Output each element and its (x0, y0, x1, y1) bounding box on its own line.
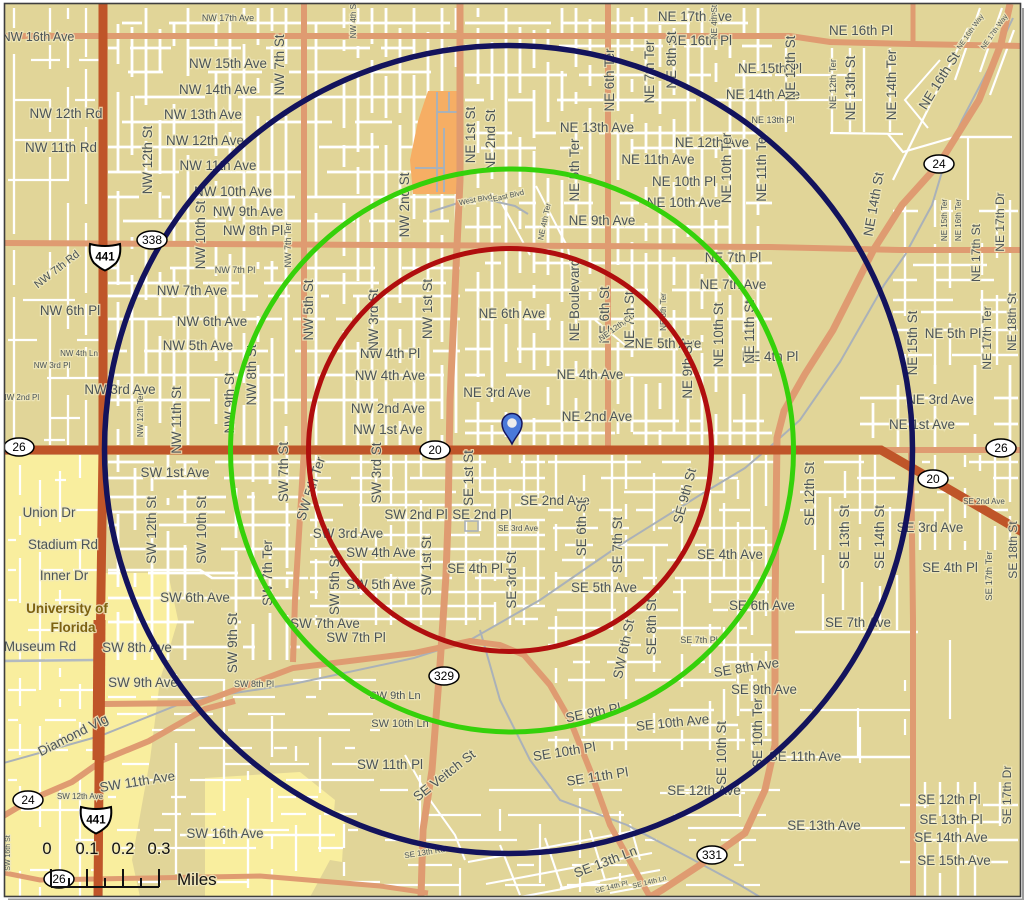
svg-text:NW 9th Ave: NW 9th Ave (213, 204, 283, 219)
svg-text:SE 15th Ave: SE 15th Ave (917, 853, 990, 868)
svg-text:SW 1st Ave: SW 1st Ave (141, 465, 210, 480)
svg-text:NW 1st St: NW 1st St (420, 279, 435, 340)
svg-text:0.2: 0.2 (112, 840, 135, 858)
svg-text:NE 9th Ave: NE 9th Ave (569, 213, 636, 228)
svg-text:20: 20 (428, 443, 442, 457)
svg-text:NW 12th Rd: NW 12th Rd (30, 106, 103, 121)
svg-text:SE 14th Ave: SE 14th Ave (914, 830, 987, 845)
svg-text:SW 5th St: SW 5th St (327, 555, 342, 616)
svg-text:SE 12th Pl: SE 12th Pl (917, 792, 980, 807)
svg-text:Inner Dr: Inner Dr (40, 568, 89, 583)
svg-text:441: 441 (95, 252, 115, 264)
svg-text:SE 6th St: SE 6th St (574, 499, 589, 556)
svg-text:NE 1st St: NE 1st St (463, 106, 478, 163)
svg-text:26: 26 (994, 441, 1008, 455)
svg-text:NE 12th Ter: NE 12th Ter (828, 59, 839, 109)
svg-text:NE 13th St: NE 13th St (843, 55, 858, 120)
svg-text:SE 2nd Ave: SE 2nd Ave (963, 497, 1005, 506)
svg-text:20: 20 (926, 472, 940, 486)
svg-text:0.1: 0.1 (76, 840, 99, 858)
svg-text:SE 1st St: SE 1st St (461, 450, 476, 506)
svg-text:NW 7th Ave: NW 7th Ave (157, 283, 227, 298)
svg-text:NW 2nd Pl: NW 2nd Pl (1, 393, 39, 402)
svg-text:NW 7th Ter: NW 7th Ter (283, 223, 293, 268)
svg-text:Florida: Florida (50, 620, 95, 635)
svg-text:SW 12th Ave: SW 12th Ave (57, 792, 104, 801)
svg-text:SW 10th Ln: SW 10th Ln (371, 718, 428, 730)
svg-text:0.3: 0.3 (148, 840, 171, 858)
svg-text:SE 7th St: SE 7th St (610, 516, 625, 573)
svg-text:NE 12th Ave: NE 12th Ave (675, 135, 749, 150)
svg-text:SE 12th St: SE 12th St (802, 462, 817, 526)
svg-text:SE 13th St: SE 13th St (837, 505, 852, 569)
svg-text:NW 7th Pl: NW 7th Pl (215, 265, 256, 275)
svg-text:NW 2nd Ave: NW 2nd Ave (351, 401, 425, 416)
svg-text:331: 331 (702, 848, 722, 862)
svg-text:SW 6th Ave: SW 6th Ave (160, 590, 230, 605)
svg-text:NW 6th Ave: NW 6th Ave (177, 314, 247, 329)
svg-text:NW 3rd Pl: NW 3rd Pl (34, 361, 71, 370)
svg-text:NE 6th Ave: NE 6th Ave (479, 306, 546, 321)
svg-text:SE 3rd St: SE 3rd St (504, 551, 519, 609)
svg-text:University of: University of (26, 601, 108, 616)
svg-text:SE 10th Ter: SE 10th Ter (750, 698, 765, 768)
svg-text:NE 11th Ave: NE 11th Ave (621, 152, 694, 167)
svg-text:338: 338 (142, 233, 162, 247)
svg-text:NE 13th Pl: NE 13th Pl (751, 115, 794, 125)
svg-text:NE 12th St: NE 12th St (783, 35, 798, 100)
svg-text:SW 1st St: SW 1st St (419, 536, 434, 596)
svg-text:NW 13th Ave: NW 13th Ave (164, 107, 242, 122)
svg-text:SE 9th Ave: SE 9th Ave (731, 682, 797, 697)
svg-text:SW 7th St: SW 7th St (276, 442, 291, 503)
svg-text:SE 14th St: SE 14th St (872, 505, 887, 569)
svg-text:SE 7th Ave: SE 7th Ave (825, 615, 891, 630)
svg-text:26: 26 (12, 440, 26, 454)
svg-text:NW 7th St: NW 7th St (272, 34, 287, 95)
svg-text:SE 7th Pl: SE 7th Pl (680, 635, 718, 645)
svg-text:NE 17th Ter: NE 17th Ter (980, 306, 994, 369)
svg-text:NW 10th Ave: NW 10th Ave (194, 184, 272, 199)
svg-text:NE 14th Ter: NE 14th Ter (884, 49, 899, 120)
svg-text:NW 1st Ave: NW 1st Ave (353, 422, 423, 437)
svg-text:NW 12th Ter: NW 12th Ter (136, 393, 145, 438)
svg-text:Museum Rd: Museum Rd (4, 639, 76, 654)
svg-text:SW 10th St: SW 10th St (194, 496, 209, 564)
svg-text:SE 4th Pl: SE 4th Pl (922, 560, 978, 575)
svg-text:SE 17th Ter: SE 17th Ter (984, 551, 995, 600)
svg-text:NW 11th Rd: NW 11th Rd (25, 140, 97, 155)
svg-text:NE 4th Ave: NE 4th Ave (557, 367, 624, 382)
svg-text:SW 7th Pl: SW 7th Pl (326, 630, 386, 645)
svg-text:NE 17th Dr: NE 17th Dr (993, 192, 1007, 251)
svg-text:SW 4th Ave: SW 4th Ave (346, 545, 416, 560)
svg-text:0: 0 (42, 840, 51, 858)
svg-text:NE 18th St: NE 18th St (1005, 292, 1019, 351)
svg-text:NW 15th Ave: NW 15th Ave (189, 56, 267, 71)
svg-text:26: 26 (52, 872, 66, 886)
svg-text:SE 5th Ave: SE 5th Ave (571, 580, 637, 595)
svg-text:SW 3rd St: SW 3rd St (369, 442, 384, 503)
svg-text:Stadium Rd: Stadium Rd (28, 537, 98, 552)
svg-text:NW 8th Pl: NW 8th Pl (223, 223, 283, 238)
svg-text:SW 9th St: SW 9th St (225, 613, 240, 674)
svg-text:SW 16th St: SW 16th St (5, 835, 12, 870)
svg-text:NE 17th Ave: NE 17th Ave (658, 9, 732, 24)
svg-text:SE 4th Pl: SE 4th Pl (447, 561, 503, 576)
svg-text:NW 4th St: NW 4th St (349, 1, 358, 38)
svg-text:NW 10th St: NW 10th St (193, 200, 208, 269)
svg-text:SW 12th St: SW 12th St (144, 496, 159, 564)
svg-text:NW 14th Ave: NW 14th Ave (179, 82, 257, 97)
svg-text:NW 6th Pl: NW 6th Pl (40, 303, 100, 318)
svg-text:SE 17th Dr: SE 17th Dr (1000, 766, 1014, 825)
svg-text:441: 441 (86, 815, 106, 827)
svg-text:SE 18th St: SE 18th St (1006, 521, 1020, 579)
svg-text:329: 329 (434, 669, 454, 683)
svg-text:Miles: Miles (177, 870, 217, 889)
svg-text:NE 5th Pl: NE 5th Pl (925, 326, 982, 341)
svg-text:SE 13th Pl: SE 13th Pl (919, 812, 982, 827)
svg-text:Union Dr: Union Dr (23, 505, 76, 520)
svg-text:SW 2nd Pl: SW 2nd Pl (384, 507, 447, 522)
svg-text:NW 11th St: NW 11th St (169, 386, 184, 454)
svg-text:NE Boulevard: NE Boulevard (567, 259, 582, 342)
svg-text:SE 10th St: SE 10th St (714, 721, 729, 785)
svg-text:NE 10th St: NE 10th St (711, 302, 726, 367)
svg-text:NE 15th Ter: NE 15th Ter (940, 199, 949, 241)
svg-text:NE 3rd Ave: NE 3rd Ave (906, 392, 974, 407)
svg-text:NE 2nd Ave: NE 2nd Ave (562, 409, 632, 424)
svg-text:24: 24 (21, 793, 35, 807)
svg-text:NE 17th St: NE 17th St (969, 223, 983, 282)
svg-text:SE 2nd Pl: SE 2nd Pl (452, 507, 512, 522)
svg-text:NW 5th St: NW 5th St (301, 279, 316, 340)
svg-text:SE 13th Ave: SE 13th Ave (787, 818, 860, 833)
svg-text:NW 2nd St: NW 2nd St (397, 172, 412, 237)
svg-text:NW 12th St: NW 12th St (140, 125, 155, 194)
svg-text:24: 24 (932, 157, 946, 171)
svg-text:NE 10th Ter: NE 10th Ter (719, 132, 734, 203)
svg-text:NE 16th Pl: NE 16th Pl (829, 23, 893, 38)
svg-text:NE 5th Ter: NE 5th Ter (567, 138, 582, 202)
svg-text:NE 13th Ave: NE 13th Ave (560, 120, 634, 135)
svg-text:NE 3rd Ave: NE 3rd Ave (463, 385, 531, 400)
svg-text:SE 8th St: SE 8th St (644, 598, 659, 655)
svg-text:NE 16th Ter: NE 16th Ter (954, 199, 963, 241)
svg-text:SW 16th Ave: SW 16th Ave (186, 826, 263, 841)
svg-text:NW 17th Ave: NW 17th Ave (202, 13, 254, 23)
svg-text:NE 2nd St: NE 2nd St (483, 109, 498, 170)
svg-text:NE 4th St: NE 4th St (710, 4, 719, 39)
svg-text:NW 16th Ave: NW 16th Ave (2, 30, 75, 44)
svg-text:NW 4th Ave: NW 4th Ave (355, 368, 425, 383)
svg-text:SE 3rd Ave: SE 3rd Ave (498, 524, 538, 533)
svg-text:SW 11th Pl: SW 11th Pl (357, 757, 423, 772)
svg-text:SW 8th Pl: SW 8th Pl (234, 679, 274, 689)
svg-text:NW 12th Ave: NW 12th Ave (166, 133, 244, 148)
svg-text:NW 5th Ave: NW 5th Ave (163, 338, 233, 353)
svg-text:SE 6th Ave: SE 6th Ave (729, 598, 795, 613)
svg-text:SE 4th Ave: SE 4th Ave (697, 547, 763, 562)
svg-text:NE 15th St: NE 15th St (905, 310, 920, 375)
svg-text:NW 4th Ln: NW 4th Ln (60, 349, 98, 358)
svg-text:NE 1st Ave: NE 1st Ave (889, 417, 955, 432)
svg-text:SW 7th Ave: SW 7th Ave (290, 616, 360, 631)
svg-text:NE 10th Pl: NE 10th Pl (652, 174, 716, 189)
svg-text:SW 9th Ave: SW 9th Ave (108, 675, 178, 690)
